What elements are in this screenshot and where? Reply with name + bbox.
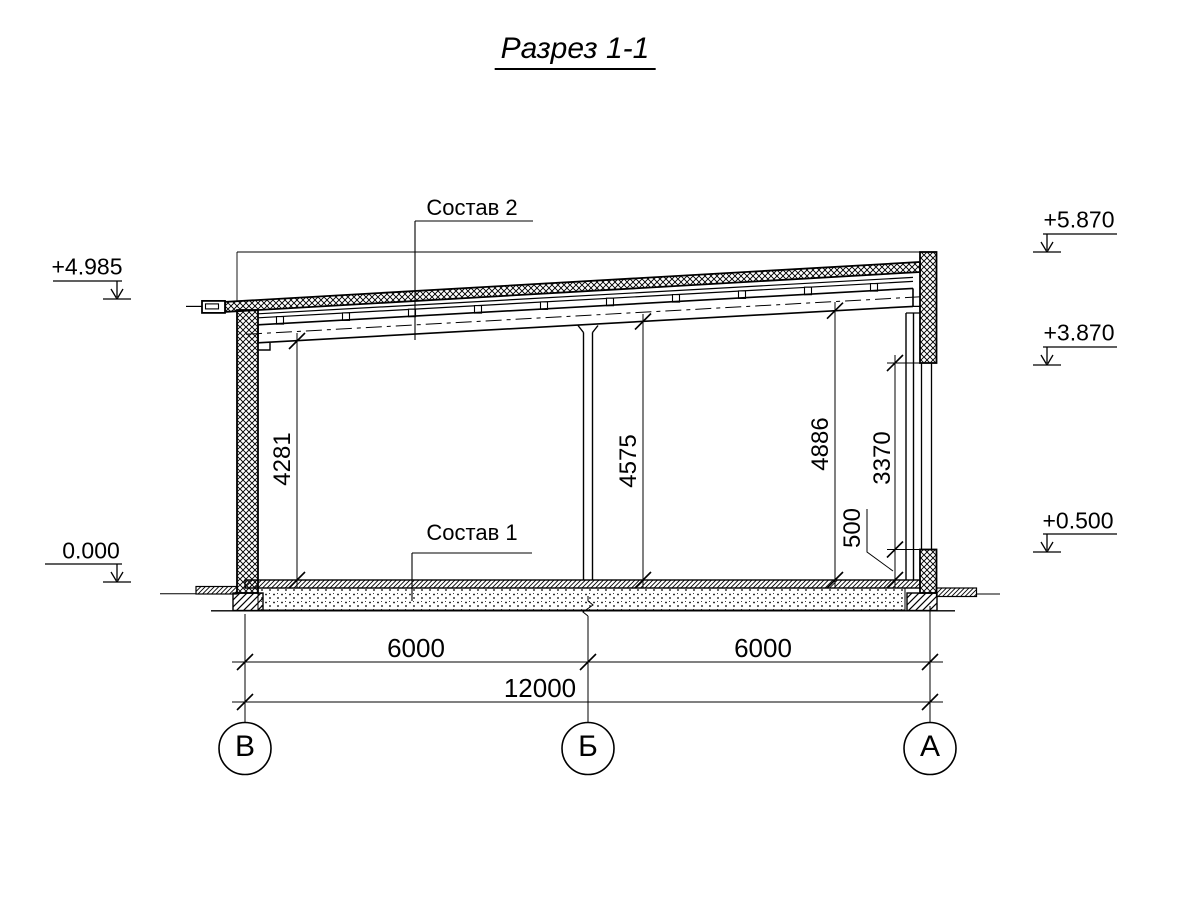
dim-span-left: 6000 xyxy=(387,635,445,661)
elevation-mark-roof-left xyxy=(53,281,131,299)
elevation-mark-zero-left xyxy=(45,564,131,582)
floor-slab xyxy=(258,588,905,610)
axis-bubble-b-label: Б xyxy=(578,732,598,762)
elevation-zero-left-value: 0.000 xyxy=(62,540,120,563)
roof-assembly-callout: Состав 2 xyxy=(426,197,517,219)
dim-opening-height: 3370 xyxy=(871,431,895,484)
blind-area-right xyxy=(937,588,977,597)
axis-bubble-v-label: В xyxy=(235,732,255,762)
elevation-sill-value: +0.500 xyxy=(1043,510,1114,533)
elevation-mark-sill-right xyxy=(1033,534,1117,552)
sill-dim-leader xyxy=(867,509,893,571)
elevation-roof-left-value: +4.985 xyxy=(52,256,123,279)
section-linework xyxy=(0,0,1200,900)
dim-height-left: 4281 xyxy=(271,432,295,485)
dim-height-middle: 4575 xyxy=(617,434,641,487)
beam-corbel-left xyxy=(258,343,270,350)
right-wall xyxy=(920,252,937,593)
elevation-opening-top-value: +3.870 xyxy=(1044,322,1115,345)
drawing-canvas: Разрез 1-1 Состав 2 Состав 1 +4.985 0.00… xyxy=(0,0,1200,900)
foundation-right xyxy=(907,593,937,611)
dim-span-total: 12000 xyxy=(504,675,576,701)
dim-sill-height: 500 xyxy=(841,508,865,548)
floor-structure xyxy=(160,580,1000,611)
foundation-left xyxy=(233,593,263,611)
axis-bubble-a-label: А xyxy=(920,732,940,762)
blind-area-left xyxy=(196,587,237,595)
left-wall xyxy=(237,310,270,593)
elevation-mark-opening-right xyxy=(1033,347,1117,365)
dim-span-right: 6000 xyxy=(734,635,792,661)
elevation-parapet-value: +5.870 xyxy=(1044,209,1115,232)
dim-height-right: 4886 xyxy=(809,417,833,470)
roof-structure xyxy=(186,262,924,343)
floor-screed xyxy=(245,580,920,588)
bottom-dimensions xyxy=(232,596,943,722)
drawing-title: Разрез 1-1 xyxy=(495,34,656,70)
elevation-mark-parapet-right xyxy=(1033,234,1117,252)
floor-assembly-callout: Состав 1 xyxy=(426,522,517,544)
